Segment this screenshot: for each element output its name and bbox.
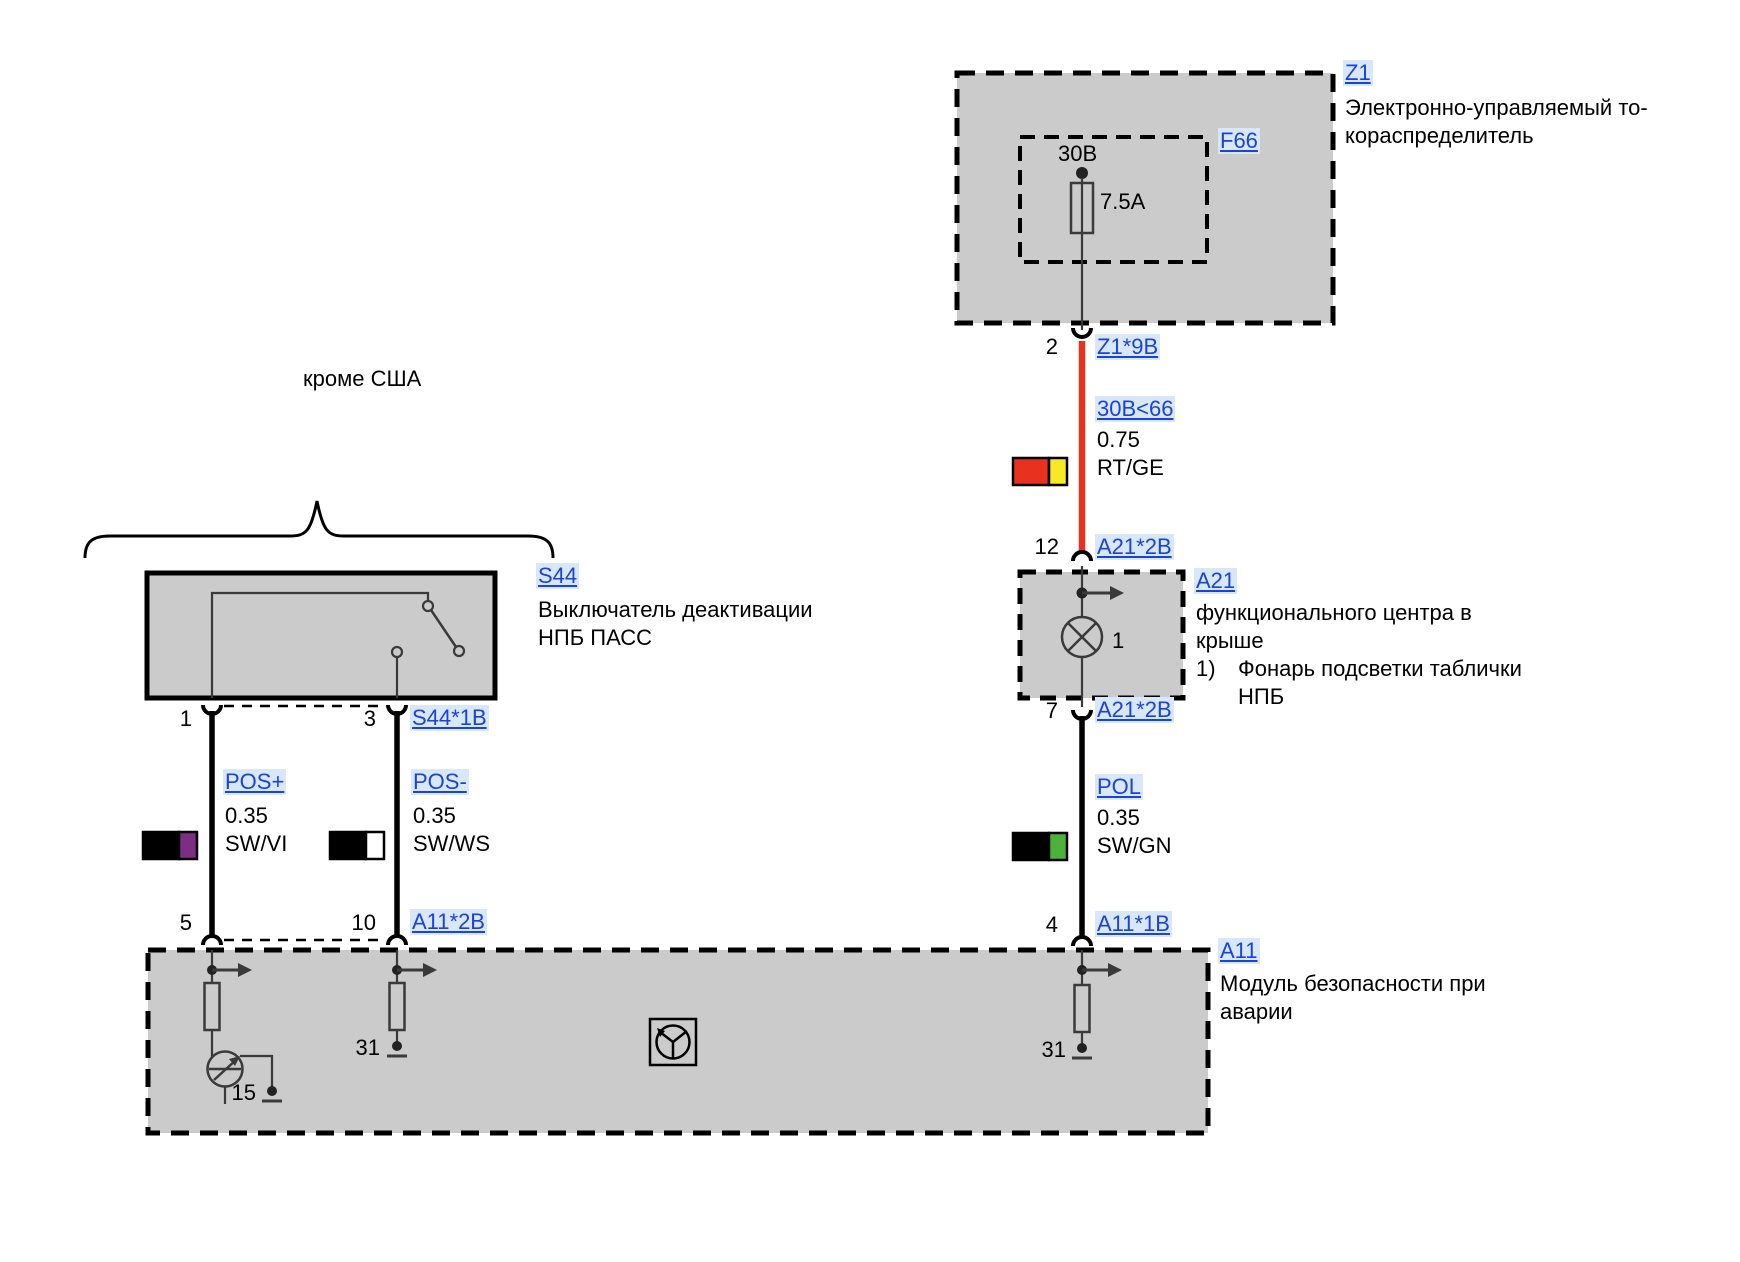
color-code-rt-ge	[1013, 458, 1067, 485]
connector-label-a21-2b-bottom[interactable]: A21*2B	[1095, 697, 1174, 723]
connector-label-a21-2b-top[interactable]: A21*2B	[1095, 534, 1174, 560]
s44-desc-line2: НПБ ПАСС	[538, 625, 652, 651]
pin-number-3: 3	[348, 706, 376, 732]
pin-number-10: 10	[342, 910, 376, 936]
color-code-sw-gn	[1013, 833, 1067, 860]
s44-desc-line1: Выключатель деактивации	[538, 597, 813, 623]
terminal-31-dot	[1077, 1043, 1087, 1053]
wire-gauge-pos-plus: 0.35	[225, 803, 268, 829]
fuse-rating-label: 7.5A	[1100, 189, 1145, 215]
terminal-31-dot	[392, 1041, 402, 1051]
terminal-15-dot	[267, 1086, 277, 1096]
z1-desc-line2: кораспределитель	[1345, 123, 1534, 149]
wiring-diagram-graphics	[0, 0, 1740, 1262]
connector-label-z1-9b[interactable]: Z1*9B	[1095, 334, 1160, 360]
wire-color-pos-plus: SW/VI	[225, 831, 287, 857]
wire-color-30b66: RT/GE	[1097, 455, 1164, 481]
a21-desc-line1: функционального центра в	[1196, 600, 1472, 626]
a11-code-link[interactable]: A11	[1218, 938, 1260, 964]
a21-footnote-index: 1)	[1196, 656, 1216, 682]
wire-gauge-pol: 0.35	[1097, 805, 1140, 831]
wire-color-pos-minus: SW/WS	[413, 831, 490, 857]
circuit-label-pos-minus[interactable]: POS-	[411, 769, 469, 795]
a11-desc-line1: Модуль безопасности при	[1220, 971, 1486, 997]
wiring-diagram-page: кроме США Z1 Электронно-управляемый то- …	[0, 0, 1740, 1262]
pin-number-2: 2	[1030, 334, 1058, 360]
pin-number-7: 7	[1034, 698, 1058, 724]
a21-footnote-line1: Фонарь подсветки таблички	[1238, 656, 1522, 682]
wire-gauge-pos-minus: 0.35	[413, 803, 456, 829]
connector-cup-pin12	[1073, 552, 1091, 561]
s44-code-link[interactable]: S44	[536, 563, 579, 589]
a21-desc-line2: крыше	[1196, 628, 1264, 654]
connector-cup-pin10	[388, 936, 406, 945]
z1-code-link[interactable]: Z1	[1343, 60, 1373, 86]
pin-number-4: 4	[1034, 912, 1058, 938]
a21-code-link[interactable]: A21	[1194, 568, 1237, 594]
connector-label-a11-2b[interactable]: A11*2B	[410, 909, 487, 935]
connector-label-a11-1b[interactable]: A11*1B	[1095, 911, 1172, 937]
connector-label-s44-1b[interactable]: S44*1B	[410, 705, 489, 731]
wire-color-pol: SW/GN	[1097, 833, 1172, 859]
region-note: кроме США	[303, 366, 421, 392]
pin-number-5: 5	[164, 910, 192, 936]
pin-number-1: 1	[164, 706, 192, 732]
connector-cup-pin4	[1073, 937, 1091, 946]
circuit-label-30b66[interactable]: 30B<66	[1095, 396, 1175, 422]
wire-gauge-30b66: 0.75	[1097, 427, 1140, 453]
a11-desc-line2: аварии	[1220, 999, 1293, 1025]
f66-code-link[interactable]: F66	[1218, 128, 1260, 154]
region-brace	[85, 501, 553, 558]
z1-desc-line1: Электронно-управляемый то-	[1345, 95, 1648, 121]
lamp-ref-number: 1	[1112, 628, 1124, 654]
terminal-30b-dot	[1076, 167, 1088, 179]
pin-number-12: 12	[1025, 534, 1059, 560]
a21-footnote-line2: НПБ	[1238, 684, 1284, 710]
terminal-31-label-mid: 31	[350, 1035, 380, 1061]
terminal-15-label: 15	[226, 1080, 256, 1106]
color-code-sw-vi	[143, 832, 197, 859]
s44-box	[147, 573, 495, 698]
color-code-sw-ws	[330, 832, 384, 859]
connector-cup-pin5	[203, 936, 221, 945]
circuit-label-pol[interactable]: POL	[1095, 774, 1143, 800]
terminal-31-label-right: 31	[1036, 1037, 1066, 1063]
circuit-label-pos-plus[interactable]: POS+	[223, 769, 286, 795]
fuse-terminal-label: 30B	[1058, 141, 1097, 167]
